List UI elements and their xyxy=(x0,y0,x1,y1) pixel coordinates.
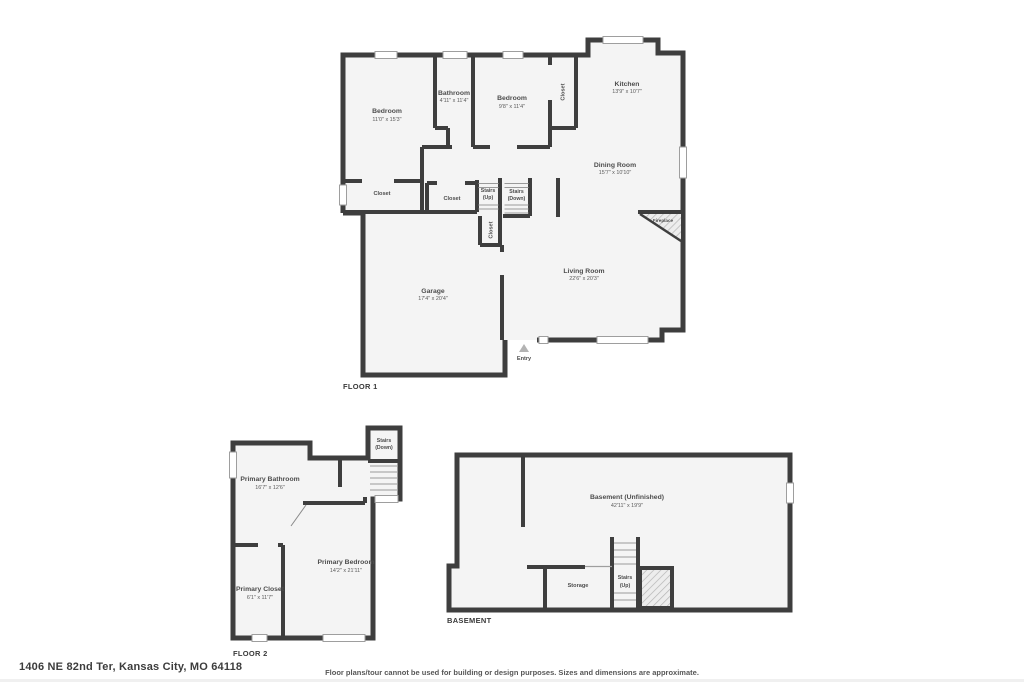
disclaimer-text: Floor plans/tour cannot be used for buil… xyxy=(0,668,1024,677)
window xyxy=(375,496,398,503)
floor1-living-dims: 22'6" x 20'3" xyxy=(569,276,599,282)
window xyxy=(375,52,397,59)
floor1-stairs-up-line2: (Up) xyxy=(483,195,494,201)
entry-arrow-icon xyxy=(519,344,529,352)
basement-stairs-up-line1: Stairs xyxy=(618,575,633,581)
window xyxy=(252,635,267,642)
window xyxy=(539,337,548,344)
floor1-stairs-down-line2: (Down) xyxy=(508,196,526,202)
floor1-closet-entry-label: Closet xyxy=(489,221,495,238)
floor1-stairs-up-line1: Stairs xyxy=(481,188,496,194)
fireplace-label: Fireplace xyxy=(653,218,674,223)
floor2-caption: FLOOR 2 xyxy=(233,649,268,658)
floor1-dining-name: Dining Room xyxy=(594,162,636,169)
window xyxy=(340,185,347,205)
basement-plan: Basement (Unfinished) 42'11" x 19'9" Sto… xyxy=(447,455,794,625)
floor2-primary-bathroom-dims: 16'7" x 12'6" xyxy=(255,485,285,491)
floor1-bedroom2-name: Bedroom xyxy=(497,95,527,102)
floor1-dining-dims: 15'7" x 10'10" xyxy=(599,170,632,176)
window xyxy=(597,337,648,344)
basement-main-dims: 42'11" x 19'9" xyxy=(611,503,643,509)
floor2-stairs-down-line1: Stairs xyxy=(377,438,392,444)
floor1-garage-name: Garage xyxy=(421,288,445,295)
floor2-primary-bathroom-name: Primary Bathroom xyxy=(240,476,299,483)
basement-caption: BASEMENT xyxy=(447,616,492,625)
basement-windows xyxy=(787,483,794,503)
floor1-stairs-down-line1: Stairs xyxy=(509,189,524,195)
floor1-closet-bedroom2-label: Closet xyxy=(561,83,567,100)
floorplan-canvas: Fireplace Bedroom 11'0" x 15'3" Bathroom… xyxy=(0,0,1024,682)
floor1-kitchen-dims: 13'9" x 10'7" xyxy=(612,89,642,95)
basement-main-name: Basement (Unfinished) xyxy=(590,494,664,501)
floorplan-page: Fireplace Bedroom 11'0" x 15'3" Bathroom… xyxy=(0,0,1024,682)
floor1-closet-bedroom1-label: Closet xyxy=(373,191,390,197)
window xyxy=(680,147,687,178)
floor1-bathroom-dims: 4'11" x 11'4" xyxy=(440,98,469,104)
window xyxy=(503,52,523,59)
floor1-living-name: Living Room xyxy=(563,268,604,275)
window xyxy=(603,37,643,44)
floor2-primary-closet-dims: 6'1" x 11'7" xyxy=(247,595,273,601)
floor1-kitchen-name: Kitchen xyxy=(615,81,640,88)
floor1-plan: Fireplace Bedroom 11'0" x 15'3" Bathroom… xyxy=(340,37,687,392)
floor1-caption: FLOOR 1 xyxy=(343,382,378,391)
floor2-plan: Primary Bathroom 16'7" x 12'6" Primary B… xyxy=(230,428,401,658)
window xyxy=(230,452,237,478)
floor1-bedroom1-name: Bedroom xyxy=(372,108,402,115)
entry-label: Entry xyxy=(517,356,532,362)
floor2-stairs-down-line2: (Down) xyxy=(375,445,393,451)
basement-stairs-up-line2: (Up) xyxy=(620,583,631,589)
floor1-garage-dims: 17'4" x 20'4" xyxy=(418,296,448,302)
basement-hatched-pad xyxy=(640,568,672,608)
floor1-closet-hall-label: Closet xyxy=(443,196,460,202)
window xyxy=(787,483,794,503)
window xyxy=(443,52,467,59)
floor2-primary-bedroom-name: Primary Bedroom xyxy=(317,559,374,566)
floor1-bedroom1-dims: 11'0" x 15'3" xyxy=(372,117,401,123)
floor2-primary-bedroom-dims: 14'2" x 21'11" xyxy=(330,568,362,574)
basement-storage-label: Storage xyxy=(568,583,589,589)
floor1-bathroom-name: Bathroom xyxy=(438,90,470,97)
floor1-bedroom2-dims: 9'8" x 11'4" xyxy=(499,104,525,110)
window xyxy=(323,635,365,642)
floor2-primary-closet-name: Primary Closet xyxy=(236,586,285,593)
